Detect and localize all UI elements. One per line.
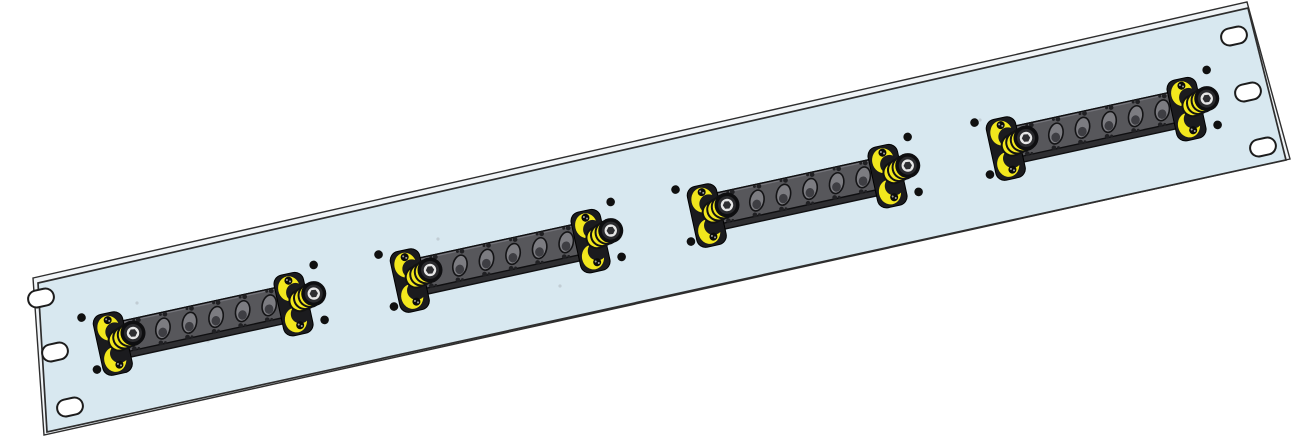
cad-render-viewport — [0, 0, 1298, 441]
panel-speck — [135, 301, 138, 304]
panel-speck — [978, 118, 981, 121]
panel-speck — [436, 237, 439, 240]
panel-speck — [558, 284, 561, 287]
rack-panel-scene — [0, 0, 1298, 441]
